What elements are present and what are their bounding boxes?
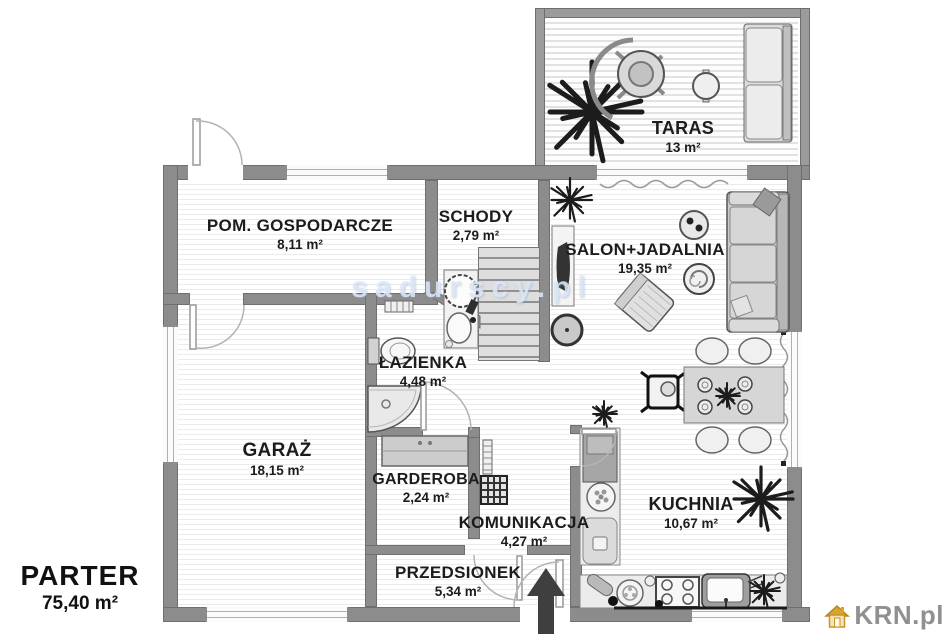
house-icon xyxy=(824,603,850,629)
brand-logo: KRN.pl xyxy=(824,600,944,631)
wardrobe xyxy=(382,436,468,466)
room-label-schody: SCHODY 2,79 m² xyxy=(439,207,514,243)
room-label-kuchnia: KUCHNIA 10,67 m² xyxy=(648,494,733,531)
floor-title: PARTER 75,40 m² xyxy=(20,560,139,615)
dining-chair xyxy=(696,338,728,364)
room-label-garaz: GARAŻ 18,15 m² xyxy=(242,440,311,478)
floor-name: PARTER xyxy=(20,560,139,592)
room-label-komunikacja: KOMUNIKACJA 4,27 m² xyxy=(459,513,590,549)
bowl xyxy=(587,483,615,511)
room-label-lazienka: ŁAZIENKA 4,48 m² xyxy=(379,353,467,389)
room-label-pom-gospodarcze: POM. GOSPODARCZE 8,11 m² xyxy=(207,216,393,252)
radiator xyxy=(483,440,492,474)
knob xyxy=(608,596,618,606)
door-leaf xyxy=(190,305,196,349)
door-leaf xyxy=(421,382,426,430)
room-label-przedsionek: PRZEDSIONEK 5,34 m² xyxy=(395,563,521,599)
plate xyxy=(617,580,643,606)
floor-area: 75,40 m² xyxy=(20,593,139,615)
small-ring xyxy=(645,576,655,586)
kitchen-plant-icon xyxy=(734,467,793,530)
small-pot xyxy=(775,573,785,583)
floor-plant xyxy=(551,178,592,222)
door-leaf xyxy=(556,560,563,607)
hall-plant-icon xyxy=(593,401,617,427)
round-table xyxy=(680,211,708,239)
side-table xyxy=(552,315,582,345)
room-label-taras: TARAS 13 m² xyxy=(652,118,714,155)
fridge xyxy=(583,432,617,482)
stove xyxy=(655,577,699,608)
floor-plan: TARAS 13 m² POM. GOSPODARCZE 8,11 m² SCH… xyxy=(0,0,950,636)
dining-chair xyxy=(739,338,771,364)
shower xyxy=(368,386,421,432)
sofa xyxy=(727,188,789,332)
door-leaf xyxy=(582,429,616,434)
armchair xyxy=(615,273,676,333)
dining-table-set xyxy=(641,338,784,453)
kitchen-sink xyxy=(702,574,750,608)
basket xyxy=(481,476,507,504)
door-leaf xyxy=(193,119,200,165)
room-label-garderoba: GARDEROBA 2,24 m² xyxy=(372,471,480,505)
terrace-side-table xyxy=(693,70,719,102)
dining-chair xyxy=(696,427,728,453)
watermark: sadurscy.pl xyxy=(351,271,593,305)
dining-chair xyxy=(739,427,771,453)
outdoor-sofa xyxy=(744,24,792,142)
brand-text: KRN.pl xyxy=(854,600,944,631)
